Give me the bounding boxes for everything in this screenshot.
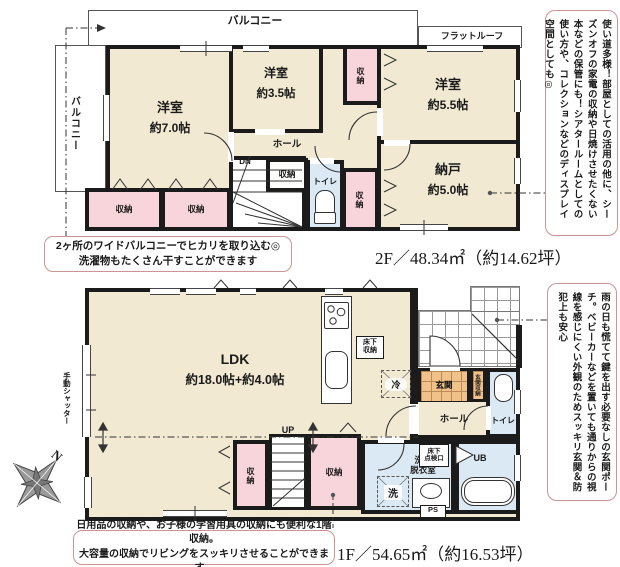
storage-2f-c-label: 収納 bbox=[354, 181, 365, 219]
storage-2f-hall-label: 収納 bbox=[266, 168, 308, 180]
room-west-7-label: 洋室 約7.0帖 bbox=[120, 98, 220, 138]
door-gap bbox=[377, 108, 383, 136]
window bbox=[325, 288, 343, 295]
note-2f-line2: 洗濯物もたくさん干すことができます bbox=[45, 254, 291, 269]
stairs-1f bbox=[269, 434, 307, 510]
entrance-porch bbox=[418, 310, 520, 367]
balcony-top-label: バルコニー bbox=[200, 15, 310, 29]
compass-north-label: N bbox=[48, 447, 65, 465]
room-name: 洋室 bbox=[435, 77, 461, 92]
window bbox=[84, 477, 92, 508]
floor-plan-canvas: バルコニー フラットルーフ バルコニー 洋室 約7.0帖 収納 収納 洋室 約3… bbox=[0, 0, 620, 567]
door-gap bbox=[310, 158, 334, 164]
window bbox=[163, 510, 227, 517]
bathtub-inner bbox=[464, 480, 512, 503]
storage-1f-b-label: 収納 bbox=[310, 466, 358, 478]
room-size: 約5.0帖 bbox=[428, 183, 469, 197]
toilet-2f-tank bbox=[314, 212, 336, 224]
ub-label: UB bbox=[468, 453, 492, 463]
window bbox=[514, 80, 521, 112]
area-label-1f: 1F／54.65㎡（約16.53坪） bbox=[337, 540, 533, 565]
wall-stub bbox=[516, 325, 522, 368]
flat-roof-label: フラットルーフ bbox=[428, 31, 516, 42]
vanity-sink bbox=[420, 483, 442, 499]
closet-2f-a-label: 収納 bbox=[100, 203, 148, 215]
entrance-porch-upper bbox=[470, 286, 520, 312]
window bbox=[400, 224, 448, 231]
stairs-dn-label: DN bbox=[233, 157, 257, 167]
area-label-2f: 2F／48.34㎡（約14.62坪） bbox=[375, 244, 571, 269]
window bbox=[514, 390, 521, 414]
side-note-1f: 雨の日も慌てて鍵を出す必要なしの玄関ポーチ。ベビーカーなどを置いても通りからの視… bbox=[547, 283, 617, 501]
room-name: 納戸 bbox=[435, 162, 461, 177]
toilet-2f-label: トイレ bbox=[305, 176, 345, 187]
window bbox=[240, 288, 256, 295]
closet-2f-b-label: 収納 bbox=[172, 203, 220, 215]
door-gap bbox=[409, 404, 419, 434]
note-2f: 2ヶ所のワイドバルコニーでヒカリを取り込む◎ 洗濯物もたくさん干すことができます bbox=[44, 236, 292, 272]
toilet-1f-bowl bbox=[494, 374, 513, 402]
wall-stub bbox=[410, 288, 418, 404]
room-center-35-label: 洋室 約3.5帖 bbox=[230, 63, 322, 103]
room-size: 約7.0帖 bbox=[150, 121, 191, 135]
window bbox=[186, 288, 216, 295]
window bbox=[514, 455, 521, 481]
side-note-2f: 使い道多様！部屋としての活用の他に、シーズンオフの家電の収納や日焼けさせたくない… bbox=[545, 10, 618, 236]
note-1f-line2: 大容量の収納でリビングをスッキリさせることができます。 bbox=[74, 548, 334, 567]
window bbox=[243, 45, 269, 52]
room-nando-label: 納戸 約5.0帖 bbox=[398, 160, 498, 200]
floor-storage-l2: 収納 bbox=[363, 347, 377, 354]
room-size: 約5.5帖 bbox=[428, 98, 469, 112]
room-size: 約18.0帖+約4.0帖 bbox=[185, 373, 284, 387]
inspect-l2: 点検口 bbox=[424, 455, 444, 462]
balcony-left-label: バルコニー bbox=[67, 88, 80, 158]
stove bbox=[324, 302, 349, 329]
compass-icon bbox=[0, 441, 79, 526]
washer-label: 洗 bbox=[384, 485, 402, 500]
window bbox=[103, 95, 110, 141]
ldk-label: LDK 約18.0帖+約4.0帖 bbox=[160, 350, 310, 390]
window bbox=[150, 288, 180, 295]
window bbox=[514, 158, 521, 184]
door-gap bbox=[430, 364, 460, 371]
ps-label: PS bbox=[428, 505, 438, 514]
note-2f-line1: 2ヶ所のワイドバルコニーでヒカリを取り込む◎ bbox=[45, 239, 291, 254]
room-name: 洋室 bbox=[157, 100, 183, 115]
hall-1f-label: ホール bbox=[430, 414, 478, 426]
ps-label-box: PS bbox=[420, 505, 446, 518]
note-1f-line1: 日用品の収納や、お子様の学習用具の収納にも便利な1階収納。 bbox=[74, 519, 334, 548]
door-gap bbox=[378, 437, 404, 443]
storage-1f-a-label: 収納 bbox=[245, 458, 256, 494]
room-east-55-label: 洋室 約5.5帖 bbox=[398, 75, 498, 115]
room-name: 洋室 bbox=[264, 66, 288, 80]
toilet-1f-label: トイレ bbox=[486, 415, 520, 426]
storage-2f-top-label: 収納 bbox=[355, 57, 366, 95]
window bbox=[180, 45, 232, 52]
floor-storage-l1: 床下 bbox=[363, 339, 377, 346]
genkan-storage-label: 玄関収納 bbox=[473, 370, 481, 400]
inspect-l1: 床下 bbox=[428, 448, 441, 455]
fridge-label: 冷 bbox=[385, 378, 407, 391]
floor-storage-box: 床下 収納 bbox=[356, 336, 384, 359]
inspect-box: 床下 点検口 bbox=[419, 444, 449, 467]
note-1f: 日用品の収納や、お子様の学習用具の収納にも便利な1階収納。 大容量の収納でリビン… bbox=[73, 530, 335, 565]
shutter-label: 手動シャッター bbox=[62, 352, 71, 444]
window-shutter bbox=[82, 345, 91, 437]
kitchen-sink bbox=[325, 351, 348, 389]
balcony-left-2f bbox=[55, 45, 106, 192]
hall-2f-label: ホール bbox=[262, 139, 312, 151]
door-gap bbox=[255, 129, 285, 135]
genkan-label-text: 玄関 bbox=[424, 379, 464, 391]
stairs-up-label: UP bbox=[268, 425, 308, 436]
room-name: LDK bbox=[221, 351, 250, 367]
window bbox=[427, 45, 483, 52]
door-gap bbox=[384, 140, 410, 146]
room-size: 約3.5帖 bbox=[257, 88, 296, 100]
